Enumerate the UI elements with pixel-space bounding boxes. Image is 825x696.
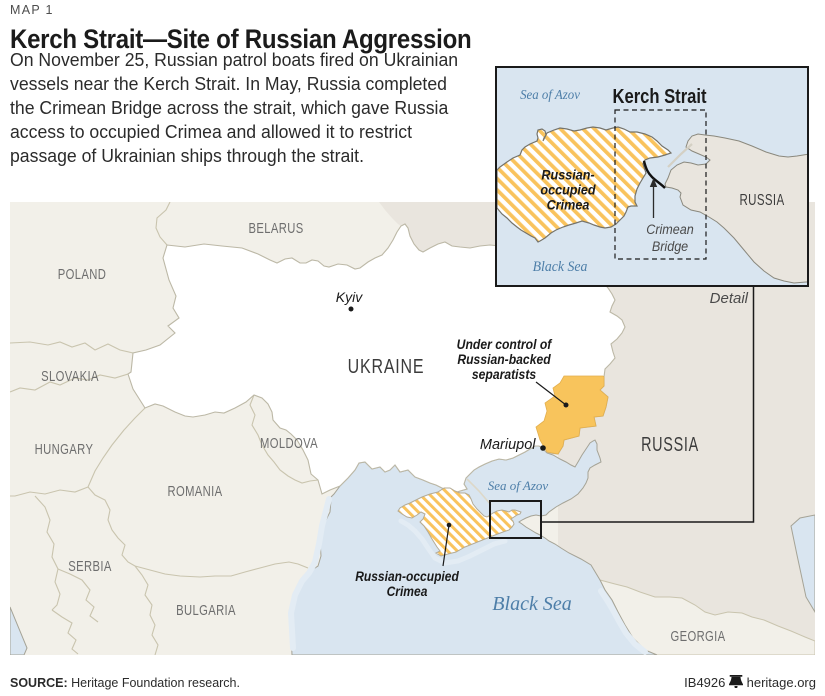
- svg-text:Kyiv: Kyiv: [336, 289, 363, 305]
- svg-text:RUSSIA: RUSSIA: [641, 433, 699, 456]
- svg-text:POLAND: POLAND: [58, 265, 106, 282]
- svg-text:SLOVAKIA: SLOVAKIA: [41, 367, 99, 384]
- svg-text:Sea of Azov: Sea of Azov: [488, 478, 549, 493]
- svg-text:Russian-occupied: Russian-occupied: [355, 568, 460, 584]
- svg-text:BULGARIA: BULGARIA: [176, 601, 236, 618]
- svg-text:BELARUS: BELARUS: [248, 219, 303, 236]
- svg-text:separatists: separatists: [472, 366, 536, 382]
- svg-text:SERBIA: SERBIA: [68, 557, 112, 574]
- svg-text:Crimea: Crimea: [387, 583, 428, 599]
- svg-text:Black Sea: Black Sea: [533, 259, 588, 276]
- svg-text:Kerch Strait: Kerch Strait: [612, 85, 706, 108]
- svg-text:Crimean: Crimean: [646, 221, 694, 237]
- svg-text:UKRAINE: UKRAINE: [348, 355, 425, 377]
- svg-text:Sea of Azov: Sea of Azov: [520, 87, 580, 103]
- svg-text:Russian-: Russian-: [541, 167, 595, 183]
- svg-text:Detail: Detail: [710, 290, 749, 307]
- svg-text:MOLDOVA: MOLDOVA: [260, 434, 318, 451]
- svg-text:GEORGIA: GEORGIA: [670, 627, 725, 644]
- svg-text:Mariupol: Mariupol: [480, 437, 536, 453]
- svg-text:Crimea: Crimea: [547, 197, 590, 213]
- svg-text:occupied: occupied: [540, 182, 596, 198]
- svg-text:HUNGARY: HUNGARY: [35, 440, 94, 457]
- svg-text:ROMANIA: ROMANIA: [167, 482, 222, 499]
- svg-text:Under control of: Under control of: [457, 336, 553, 352]
- svg-text:Russian-backed: Russian-backed: [457, 351, 551, 367]
- svg-text:Black Sea: Black Sea: [492, 593, 571, 615]
- svg-text:Bridge: Bridge: [652, 238, 688, 254]
- svg-text:RUSSIA: RUSSIA: [739, 190, 784, 208]
